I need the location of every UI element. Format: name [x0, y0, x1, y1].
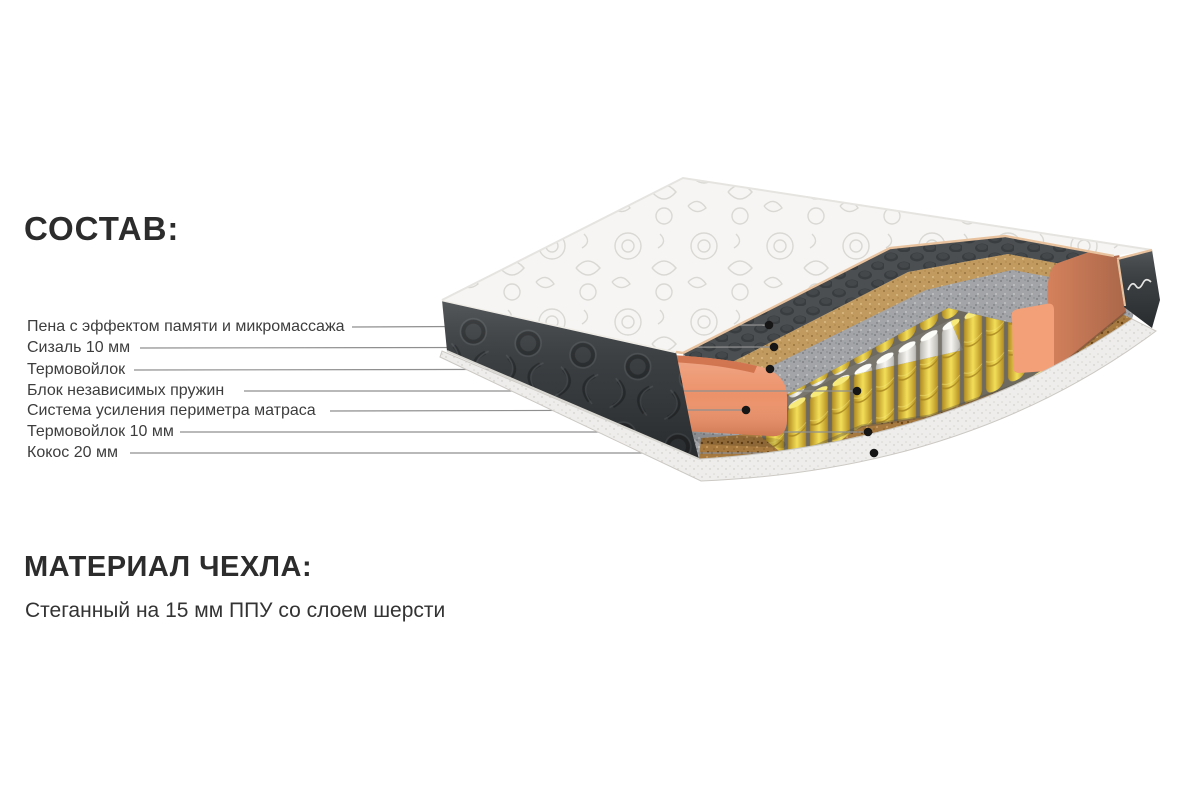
dot-thermo-felt10	[864, 428, 873, 437]
infographic-stage: СОСТАВ: Пена с эффектом памяти и микрома…	[0, 0, 1191, 794]
dot-thermo-felt	[766, 365, 775, 374]
cover-material-description: Стеганный на 15 мм ППУ со слоем шерсти	[25, 599, 445, 623]
cover-tip-piping	[676, 352, 683, 353]
dot-coconut	[870, 449, 879, 458]
composition-heading: СОСТАВ:	[24, 210, 179, 248]
layer-label-sisal: Сизаль 10 мм	[27, 337, 135, 359]
layer-label-springs: Блок независимых пружин	[27, 380, 229, 402]
dot-sisal	[770, 343, 779, 352]
layer-label-perimeter: Система усиления периметра матраса	[27, 400, 321, 422]
layer-label-thermo-felt10: Термовойлок 10 мм	[27, 421, 179, 443]
layer-label-coconut: Кокос 20 мм	[27, 442, 123, 464]
dot-springs	[853, 387, 862, 396]
dot-perimeter	[742, 406, 751, 415]
cover-material-heading: МАТЕРИАЛ ЧЕХЛА:	[24, 551, 312, 584]
right-rail-cut-face	[1012, 304, 1054, 373]
layer-label-thermo-felt: Термовойлок	[27, 359, 130, 381]
dot-memory-foam	[765, 321, 774, 330]
layer-label-memory-foam: Пена с эффектом памяти и микромассажа	[27, 316, 350, 338]
